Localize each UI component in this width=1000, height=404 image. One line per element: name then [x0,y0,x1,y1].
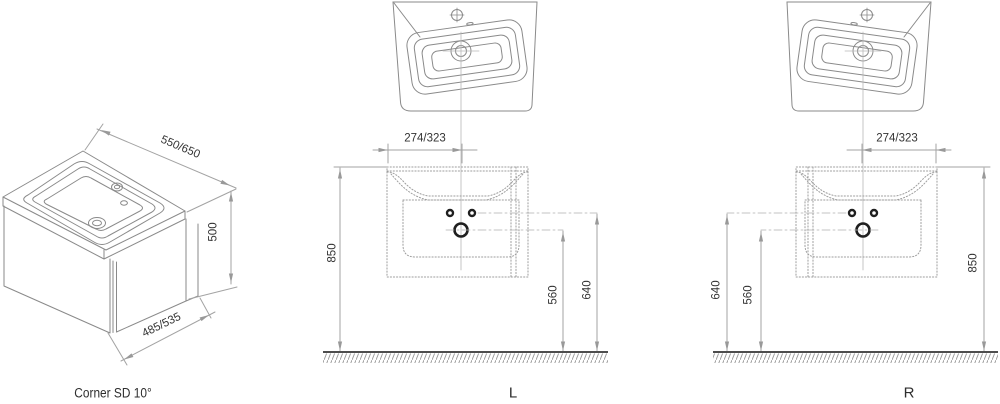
l-supply-height-dimension: 640 [582,280,594,299]
r-supply-height-dimension: 640 [711,280,723,299]
r-faucet-offset-dimension: 274/323 [876,133,918,145]
r-drain-height-dimension: 560 [743,285,755,304]
l-drain-height-dimension: 560 [548,285,560,304]
l-total-height-dimension: 850 [327,243,339,262]
technical-drawing-sheet: 550/650 500 485/535 Corner SD 10° 274/32… [0,0,1000,404]
corner-figure-title: Corner SD 10° [74,386,151,400]
corner-3d-figure [3,124,237,365]
figure-r-linework [725,2,990,351]
corner-height-dimension: 500 [208,222,220,241]
drawing-canvas [0,0,1000,404]
r-figure-title: R [904,386,915,401]
floor-r [713,352,998,363]
overflow-3d [121,201,128,205]
floor-l [323,352,608,363]
l-figure-title: L [509,386,517,401]
r-total-height-dimension: 850 [968,253,980,272]
drain-3d [89,218,106,229]
l-faucet-offset-dimension: 274/323 [404,133,446,145]
